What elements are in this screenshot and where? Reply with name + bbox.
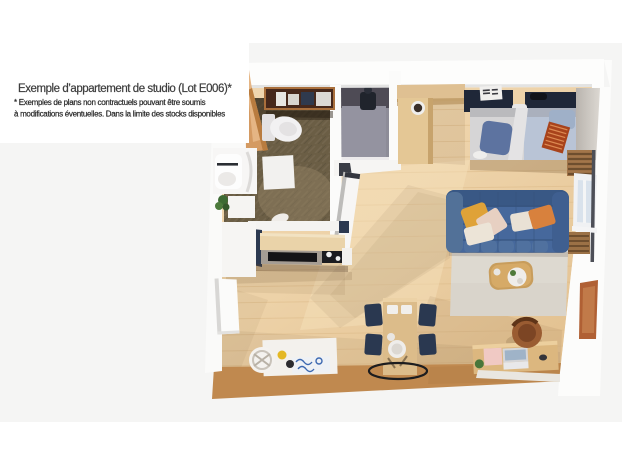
- svg-text:Exemple d’appartement de studi: Exemple d’appartement de studio (Lot E00…: [18, 83, 232, 95]
- svg-text:à modifications éventuelles. D: à modifications éventuelles. Dans la lim…: [14, 110, 225, 119]
- svg-text:* Exemples de plans non contra: * Exemples de plans non contractuels pou…: [14, 98, 206, 107]
